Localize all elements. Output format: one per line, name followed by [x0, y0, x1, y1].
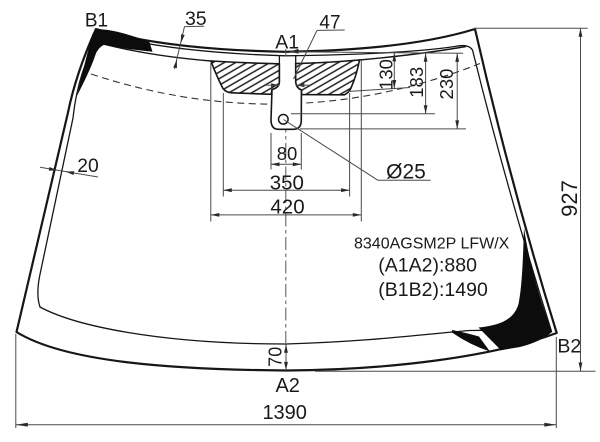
svg-text:420: 420 [270, 196, 304, 219]
svg-text:B2: B2 [557, 336, 581, 358]
svg-text:Ø25: Ø25 [386, 160, 426, 183]
svg-text:(B1B2):1490: (B1B2):1490 [378, 279, 488, 301]
svg-text:350: 350 [270, 171, 304, 194]
svg-text:183: 183 [406, 67, 427, 98]
svg-text:1390: 1390 [262, 402, 307, 424]
svg-text:(A1A2):880: (A1A2):880 [378, 255, 477, 277]
svg-text:230: 230 [436, 69, 457, 100]
svg-text:70: 70 [266, 347, 286, 367]
svg-text:8340AGSM2P LFW/X: 8340AGSM2P LFW/X [354, 236, 510, 253]
svg-text:A2: A2 [275, 375, 299, 397]
svg-text:80: 80 [277, 143, 298, 164]
svg-text:130: 130 [375, 59, 396, 90]
svg-text:B1: B1 [85, 11, 108, 32]
svg-text:927: 927 [557, 180, 582, 217]
